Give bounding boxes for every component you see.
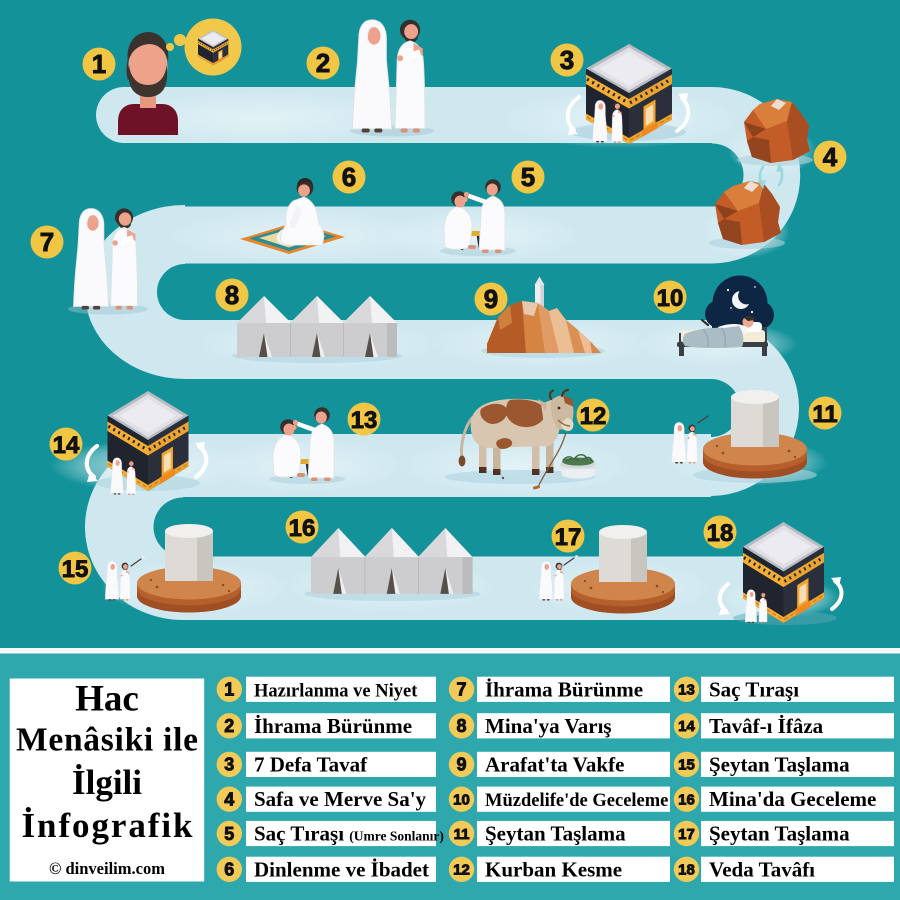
svg-text:12: 12 [453,862,470,879]
svg-text:18: 18 [678,862,695,879]
svg-text:8: 8 [456,716,466,736]
svg-text:17: 17 [678,826,695,843]
svg-text:İnfografik: İnfografik [22,806,194,845]
svg-text:16: 16 [678,792,695,809]
svg-text:İhrama Bürünme: İhrama Bürünme [485,677,643,701]
svg-text:11: 11 [454,826,470,843]
svg-text:Safa ve Merve Sa'y: Safa ve Merve Sa'y [254,787,427,811]
svg-text:1: 1 [224,680,234,700]
svg-text:Veda Tavâfı: Veda Tavâfı [709,857,815,881]
svg-text:4: 4 [823,142,838,172]
svg-text:Şeytan Taşlama: Şeytan Taşlama [485,822,626,846]
svg-text:Dinlenme ve İbadet: Dinlenme ve İbadet [254,857,429,881]
svg-text:3: 3 [224,755,234,775]
svg-text:7: 7 [40,227,54,257]
svg-text:8: 8 [225,280,239,310]
svg-text:14: 14 [678,718,695,735]
svg-text:18: 18 [707,520,734,547]
svg-text:2: 2 [316,48,330,78]
svg-text:6: 6 [224,860,234,880]
svg-text:9: 9 [484,284,498,314]
svg-text:9: 9 [456,755,466,775]
svg-text:13: 13 [678,682,695,699]
svg-text:12: 12 [580,403,607,430]
svg-text:Şeytan Taşlama: Şeytan Taşlama [709,822,850,846]
svg-text:10: 10 [657,285,684,312]
svg-text:11: 11 [812,401,837,428]
svg-text:Saç Tıraşı: Saç Tıraşı [709,677,799,701]
svg-text:7: 7 [456,680,466,700]
svg-text:3: 3 [560,45,574,75]
svg-text:6: 6 [342,162,356,192]
svg-text:Arafat'ta Vakfe: Arafat'ta Vakfe [485,752,624,776]
svg-text:Şeytan Taşlama: Şeytan Taşlama [709,752,850,776]
svg-text:4: 4 [224,790,234,810]
svg-text:15: 15 [62,556,89,583]
svg-text:13: 13 [351,407,378,434]
svg-text:15: 15 [678,757,695,774]
svg-text:7 Defa Tavaf: 7 Defa Tavaf [254,752,368,776]
svg-text:İlgili: İlgili [72,763,142,802]
svg-text:17: 17 [555,524,582,551]
svg-text:16: 16 [289,515,316,542]
svg-text:5: 5 [521,162,535,192]
svg-text:Hazırlanma ve Niyet: Hazırlanma ve Niyet [254,681,418,701]
svg-text:Menâsiki ile: Menâsiki ile [16,722,198,759]
svg-text:1: 1 [92,49,106,79]
svg-text:Hac: Hac [75,679,139,720]
svg-text:© dinveilim.com: © dinveilim.com [49,859,165,878]
svg-text:Müzdelife'de Geceleme: Müzdelife'de Geceleme [485,791,668,811]
svg-text:10: 10 [453,792,470,809]
svg-text:5: 5 [224,824,234,844]
svg-text:Mina'ya Varış: Mina'ya Varış [485,714,612,738]
svg-text:2: 2 [224,716,234,736]
svg-text:Tavâf-ı İfâza: Tavâf-ı İfâza [709,714,824,738]
svg-text:Kurban Kesme: Kurban Kesme [485,857,622,881]
svg-text:İhrama Bürünme: İhrama Bürünme [254,714,412,738]
svg-text:Mina'da Geceleme: Mina'da Geceleme [709,787,876,811]
svg-text:14: 14 [53,432,80,459]
